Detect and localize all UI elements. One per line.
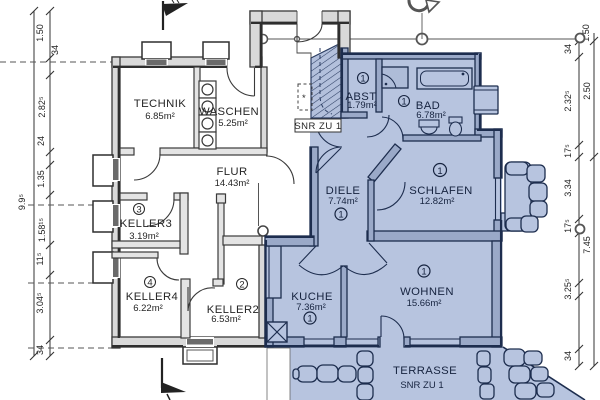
svg-text:SNR ZU 1: SNR ZU 1 [400, 380, 443, 391]
svg-text:34: 34 [50, 45, 60, 55]
svg-text:34: 34 [563, 351, 573, 361]
svg-text:SNR ZU 1: SNR ZU 1 [294, 121, 341, 132]
svg-text:1.58¹⁵: 1.58¹⁵ [37, 218, 47, 243]
svg-text:FLUR: FLUR [216, 166, 247, 178]
svg-text:7.74m²: 7.74m² [328, 196, 358, 207]
svg-text:1: 1 [338, 210, 343, 221]
svg-text:6.53m²: 6.53m² [211, 314, 241, 325]
svg-text:TECHNIK: TECHNIK [134, 98, 186, 110]
svg-text:6.22m²: 6.22m² [133, 303, 163, 314]
svg-text:WOHNEN: WOHNEN [400, 286, 454, 298]
svg-text:3: 3 [136, 205, 141, 216]
svg-text:5.25m²: 5.25m² [218, 118, 248, 129]
svg-text:12.82m²: 12.82m² [420, 196, 455, 207]
svg-text:14.43m²: 14.43m² [215, 178, 250, 189]
svg-text:34: 34 [563, 44, 573, 54]
svg-text:1.50: 1.50 [35, 24, 45, 42]
svg-text:2.32⁵: 2.32⁵ [563, 90, 573, 112]
svg-text:*: * [302, 93, 306, 104]
svg-text:1: 1 [437, 166, 442, 177]
svg-text:1: 1 [360, 74, 365, 85]
svg-text:WASCHEN: WASCHEN [199, 106, 259, 118]
svg-text:9.9⁵: 9.9⁵ [17, 194, 27, 211]
svg-text:11⁵: 11⁵ [35, 252, 45, 265]
svg-text:17⁵: 17⁵ [563, 219, 573, 233]
svg-text:1: 1 [307, 314, 312, 325]
svg-text:TERRASSE: TERRASSE [393, 365, 457, 377]
svg-text:6.85m²: 6.85m² [145, 111, 175, 122]
svg-text:1.79m²: 1.79m² [347, 100, 377, 111]
svg-text:3.25⁵: 3.25⁵ [563, 278, 573, 300]
svg-text:1.35: 1.35 [36, 170, 46, 188]
svg-text:3.34: 3.34 [563, 179, 573, 197]
svg-text:KELLER3: KELLER3 [120, 218, 172, 230]
svg-text:2.82⁵: 2.82⁵ [37, 96, 47, 118]
svg-text:24: 24 [36, 136, 46, 146]
svg-text:KELLER4: KELLER4 [126, 291, 178, 303]
svg-text:4: 4 [147, 278, 152, 289]
svg-text:7.36m²: 7.36m² [296, 302, 326, 313]
svg-text:3.04⁵: 3.04⁵ [35, 292, 45, 314]
svg-text:6.78m²: 6.78m² [416, 110, 446, 121]
svg-text:3.19m²: 3.19m² [129, 231, 159, 242]
svg-text:1: 1 [401, 97, 406, 108]
svg-text:7.45: 7.45 [582, 236, 592, 254]
svg-text:34: 34 [35, 345, 45, 355]
svg-text:2: 2 [239, 280, 244, 291]
svg-text:15.66m²: 15.66m² [407, 298, 442, 309]
svg-text:2.50: 2.50 [582, 82, 592, 100]
svg-text:1: 1 [421, 267, 426, 278]
svg-text:17⁵: 17⁵ [563, 144, 573, 158]
